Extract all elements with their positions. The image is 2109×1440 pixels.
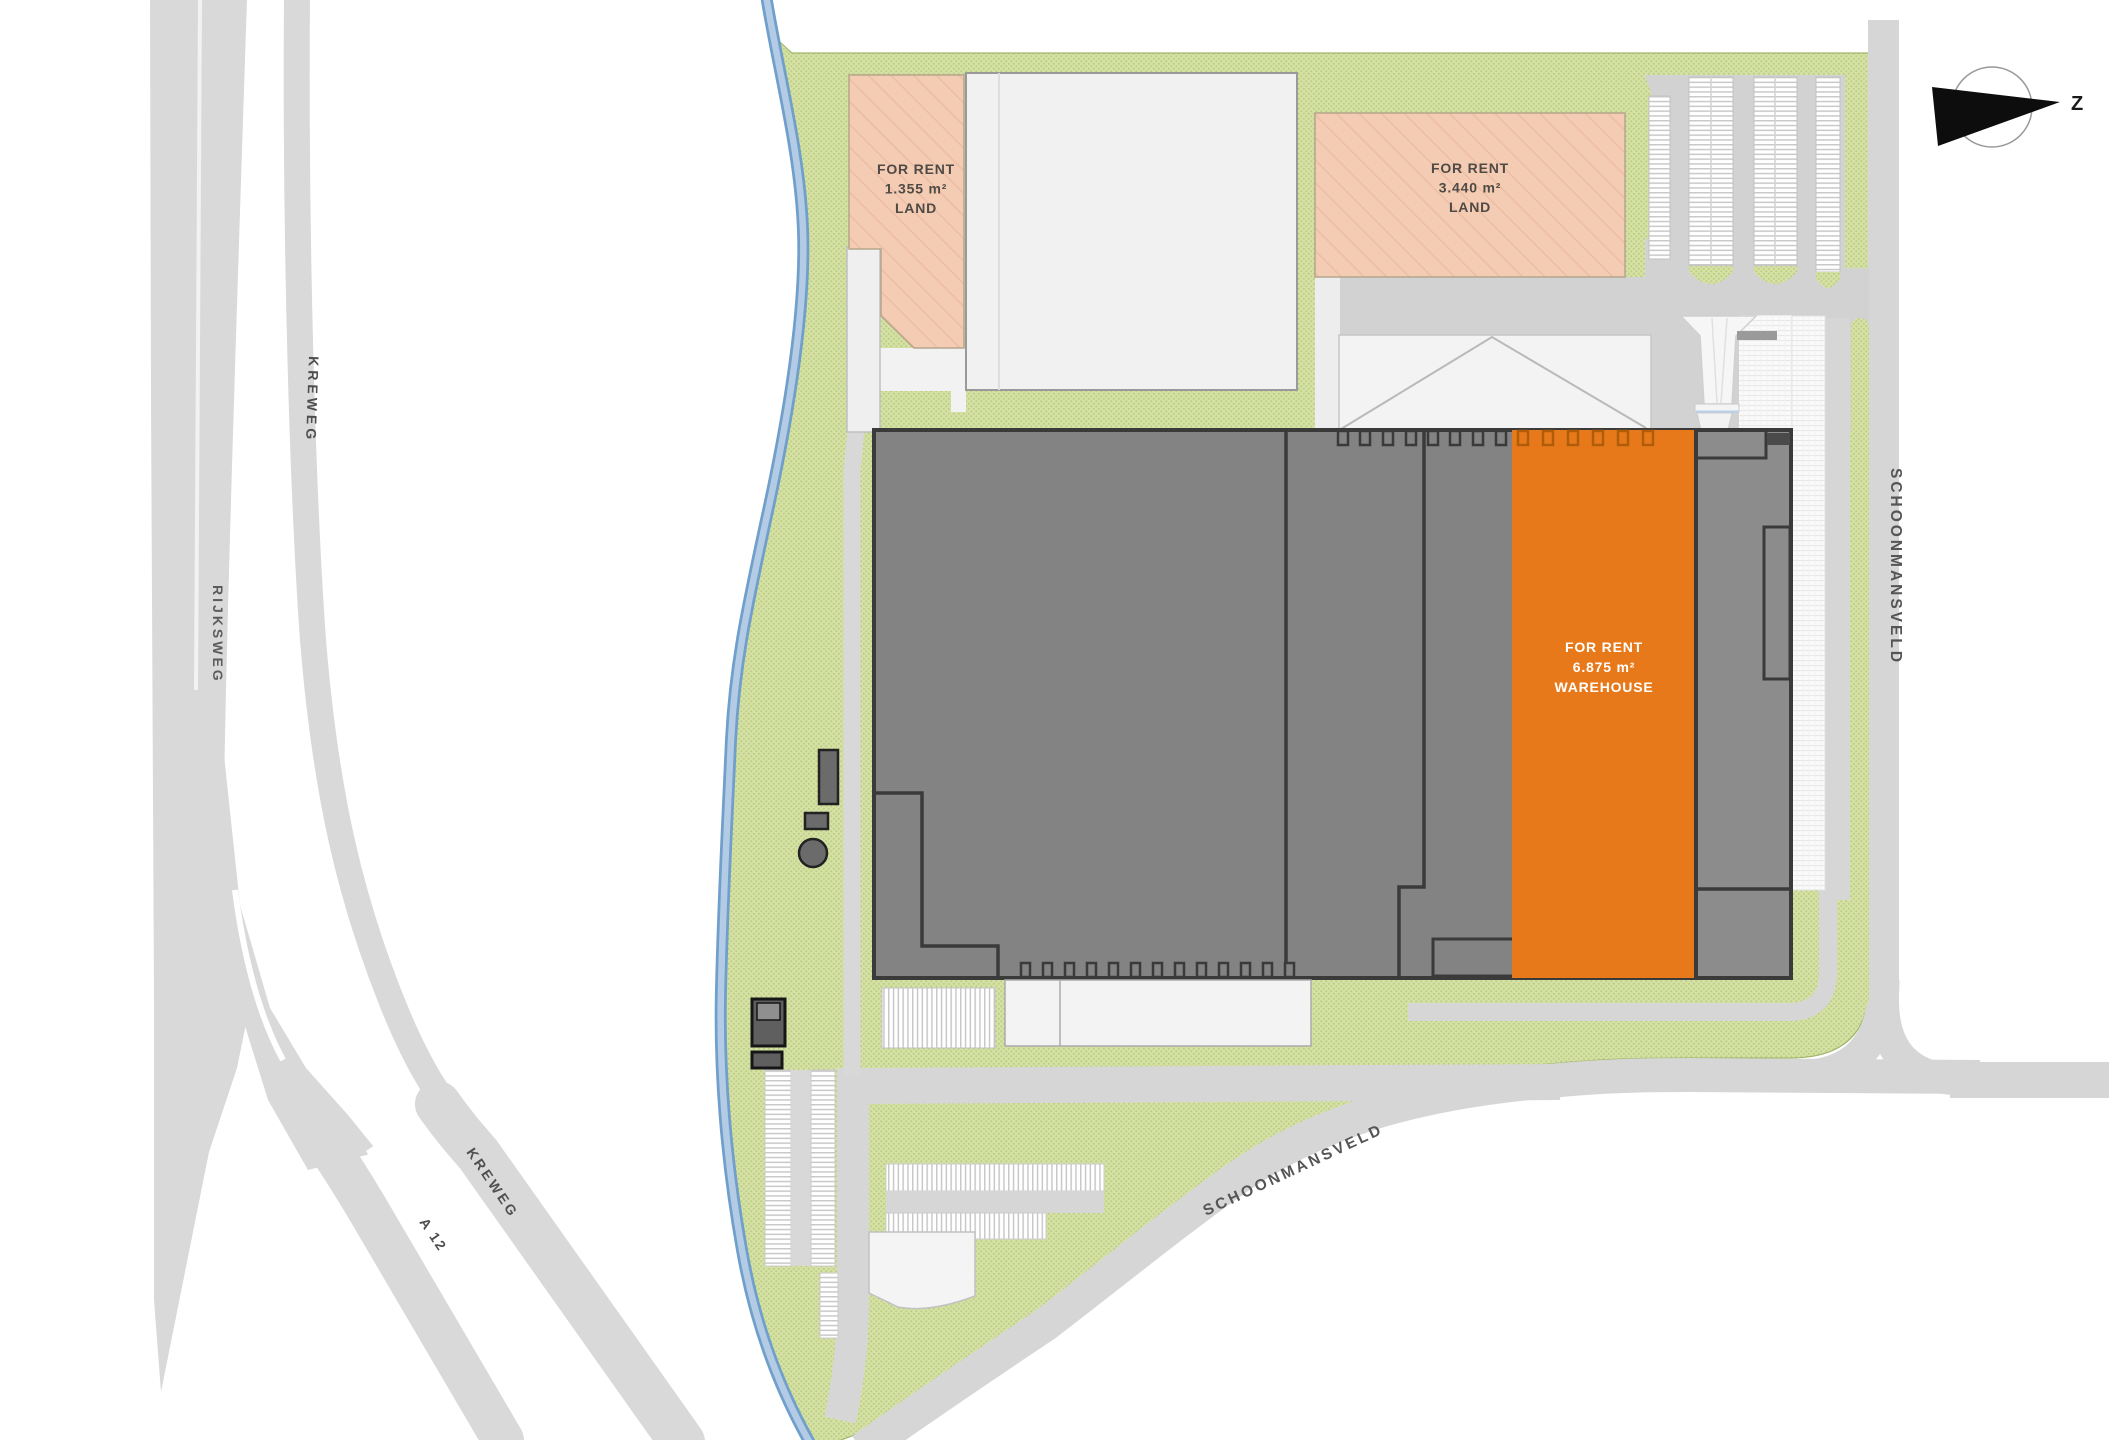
svg-text:1.355 m²: 1.355 m² <box>885 181 947 197</box>
svg-text:FOR RENT: FOR RENT <box>1431 160 1509 176</box>
svg-text:LAND: LAND <box>1449 199 1491 215</box>
svg-text:Z: Z <box>2071 93 2083 115</box>
svg-text:3.440 m²: 3.440 m² <box>1439 180 1501 196</box>
svg-text:KREWEG: KREWEG <box>303 356 322 444</box>
svg-text:WAREHOUSE: WAREHOUSE <box>1555 679 1654 695</box>
svg-text:RIJKSWEG: RIJKSWEG <box>210 585 226 684</box>
svg-text:SCHOONMANSVELD: SCHOONMANSVELD <box>1887 468 1904 665</box>
svg-text:FOR RENT: FOR RENT <box>877 161 955 177</box>
svg-text:LAND: LAND <box>895 200 937 216</box>
svg-text:FOR RENT: FOR RENT <box>1565 639 1643 655</box>
svg-text:6.875 m²: 6.875 m² <box>1573 659 1635 675</box>
